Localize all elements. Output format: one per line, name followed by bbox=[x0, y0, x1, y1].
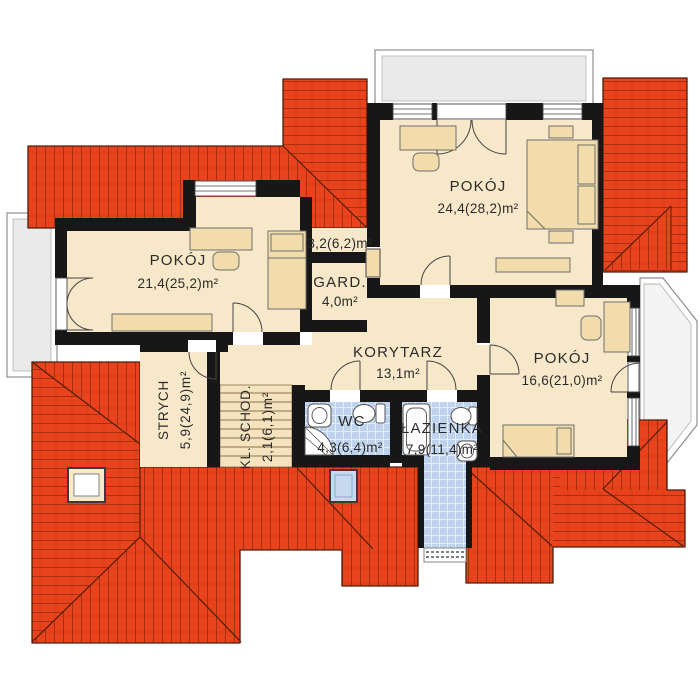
label-stairs-area: 2,1(6,1)m² bbox=[260, 392, 275, 462]
label-room-big-area: 24,4(28,2)m² bbox=[438, 201, 519, 216]
wc-sink bbox=[308, 404, 331, 427]
floor-landing bbox=[218, 345, 312, 390]
bed-right-room bbox=[503, 425, 574, 457]
label-wc-name: WC bbox=[338, 413, 365, 430]
window-big-room-1 bbox=[393, 104, 432, 119]
label-room-big-name: POKÓJ bbox=[450, 178, 507, 195]
window-left-room bbox=[195, 181, 256, 196]
label-small-room-area: 3,2(6,2)m² bbox=[307, 236, 372, 251]
window-big-room-2 bbox=[543, 104, 582, 119]
label-strych-name: STRYCH bbox=[156, 380, 171, 440]
balcony-top bbox=[375, 50, 593, 106]
label-strych-area: 5,9(24,9)m² bbox=[178, 371, 193, 450]
bed-big-room bbox=[527, 140, 598, 229]
skylight-center bbox=[330, 470, 357, 502]
window-bathroom bbox=[424, 548, 466, 562]
label-room-right-area: 16,6(21,0)m² bbox=[522, 373, 603, 388]
label-room-left-name: POKÓJ bbox=[150, 252, 207, 269]
label-stairs-name: KL. SCHOD. bbox=[238, 385, 253, 470]
label-gard-name: GARD. bbox=[313, 274, 367, 291]
floor-plan-drawing: POKÓJ 21,4(25,2)m² 3,2(6,2)m² GARD. 4,0m… bbox=[0, 0, 700, 700]
dresser-right-room bbox=[556, 290, 584, 306]
desk-right-room bbox=[604, 302, 630, 352]
bed-left-room bbox=[268, 231, 306, 309]
label-gard-area: 4,0m² bbox=[322, 294, 358, 309]
chair-big-room bbox=[413, 153, 439, 171]
chair-right-room bbox=[581, 316, 601, 340]
desk-big-room bbox=[400, 126, 456, 150]
floor-doorway-right-room bbox=[477, 345, 490, 375]
label-corridor-name: KORYTARZ bbox=[353, 344, 443, 361]
label-bathroom-name: ŁAZIENKA bbox=[401, 420, 483, 437]
roof-right bbox=[603, 78, 687, 272]
label-room-right-name: POKÓJ bbox=[534, 350, 591, 367]
dresser-left-room bbox=[112, 314, 212, 331]
label-wc-area: 4,3(6,4)m² bbox=[317, 440, 382, 455]
balcony-left bbox=[7, 213, 57, 377]
skylight-left bbox=[68, 468, 105, 502]
door-gard bbox=[366, 247, 380, 278]
staircase bbox=[220, 385, 292, 467]
label-corridor-area: 13,1m² bbox=[376, 366, 420, 381]
nightstand-big-room-1 bbox=[549, 126, 573, 138]
floor-plan: POKÓJ 21,4(25,2)m² 3,2(6,2)m² GARD. 4,0m… bbox=[0, 0, 700, 700]
desk-left-room bbox=[190, 228, 252, 250]
floor-strych bbox=[140, 352, 207, 467]
nightstand-big-room-2 bbox=[549, 231, 573, 243]
chair-left-room bbox=[213, 252, 239, 270]
dresser-big-room bbox=[496, 258, 570, 272]
label-bathroom-area: 7,9(11,4)m² bbox=[406, 442, 478, 457]
window-bay-2 bbox=[628, 398, 639, 446]
label-room-left-area: 21,4(25,2)m² bbox=[138, 276, 219, 291]
